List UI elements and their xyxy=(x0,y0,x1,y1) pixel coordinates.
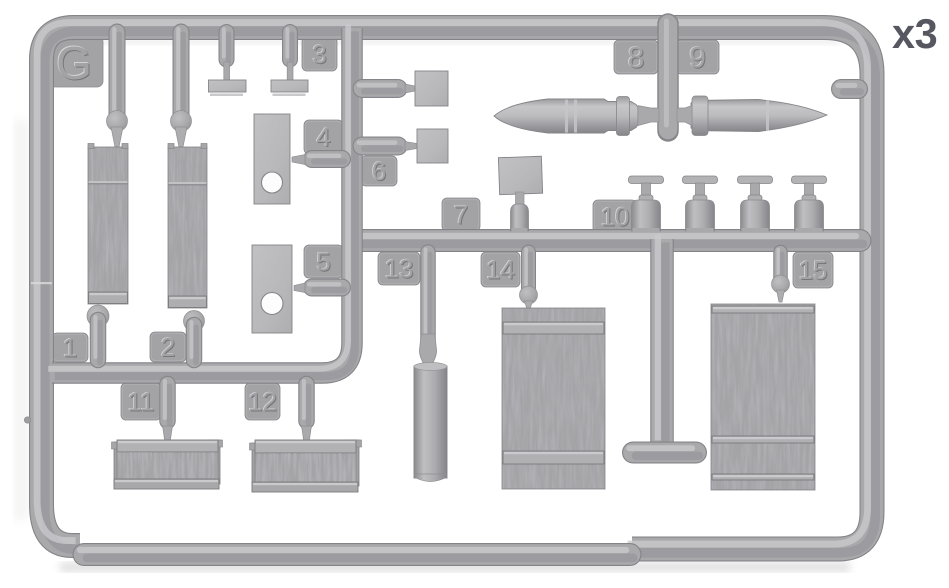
svg-text:13: 13 xyxy=(385,254,414,284)
svg-text:12: 12 xyxy=(248,387,277,417)
svg-text:5: 5 xyxy=(316,247,330,277)
svg-text:14: 14 xyxy=(486,255,515,285)
svg-text:2: 2 xyxy=(161,332,175,362)
svg-text:11: 11 xyxy=(128,387,155,417)
svg-text:8: 8 xyxy=(628,42,645,75)
svg-text:7: 7 xyxy=(454,200,468,230)
svg-text:x3: x3 xyxy=(892,10,937,57)
svg-text:15: 15 xyxy=(799,255,828,285)
svg-text:6: 6 xyxy=(372,156,386,186)
svg-text:3: 3 xyxy=(312,39,326,69)
svg-text:1: 1 xyxy=(63,333,77,363)
svg-text:10: 10 xyxy=(601,202,630,232)
svg-text:G: G xyxy=(56,37,92,89)
svg-text:4: 4 xyxy=(316,122,330,152)
svg-text:9: 9 xyxy=(689,42,706,75)
